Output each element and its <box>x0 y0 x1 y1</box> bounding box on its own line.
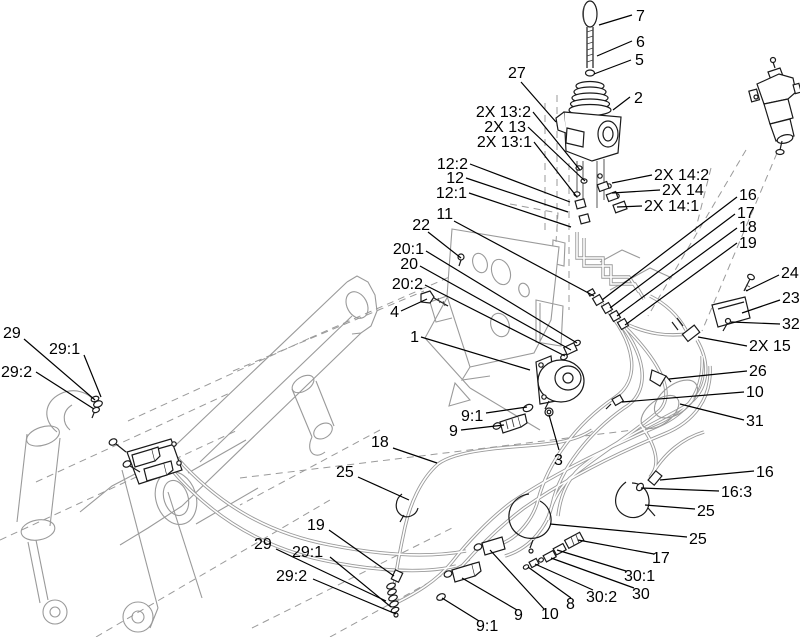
leader-line <box>442 598 479 621</box>
callout-label: 3 <box>554 452 563 469</box>
leader-line <box>731 322 780 324</box>
leader-line <box>557 550 626 571</box>
callout-label: 29:2 <box>276 568 307 585</box>
leader-line <box>462 578 517 610</box>
leader-line <box>612 175 652 183</box>
leader-line <box>469 193 571 227</box>
hose-path <box>178 459 466 555</box>
threaded-shaft <box>587 30 593 62</box>
leader-line <box>551 558 634 588</box>
leader-line <box>594 60 631 74</box>
callout-label: 7 <box>636 8 645 25</box>
callout-label: 16 <box>739 187 757 204</box>
callout-label: 26 <box>749 363 767 380</box>
callout-label: 2 <box>634 90 643 107</box>
leader-line <box>645 505 695 509</box>
clamp-25-right <box>616 482 655 518</box>
leader-line <box>36 372 94 409</box>
coupler-9 <box>492 414 527 433</box>
leader-line <box>358 477 409 500</box>
callout-label: 2X 14 <box>662 182 704 199</box>
leader-line <box>597 41 632 56</box>
mounting-plate <box>430 229 563 380</box>
leader-line <box>535 564 593 590</box>
solenoid-valve <box>749 58 800 155</box>
fitting-29-left <box>90 395 103 418</box>
callout-label: 10 <box>746 384 764 401</box>
callout-label: 4 <box>390 304 399 321</box>
hose-inner <box>178 459 466 555</box>
callout-label: 30:2 <box>586 589 617 606</box>
callout-label: 31 <box>746 413 764 430</box>
callout-label: 19 <box>307 517 325 534</box>
callout-label: 17 <box>652 550 670 567</box>
joystick-bellows <box>569 82 611 116</box>
valve-block <box>492 356 584 433</box>
callout-label: 29:2 <box>1 364 32 381</box>
leader-line <box>393 448 437 463</box>
callout-label: 30 <box>632 586 650 603</box>
leader-line <box>622 392 744 402</box>
callout-label: 1 <box>410 329 419 346</box>
bolt-4 <box>421 291 448 306</box>
hoses <box>170 232 710 602</box>
callout-label: 29 <box>254 536 272 553</box>
leader-line <box>599 15 632 25</box>
callout-label: 29:1 <box>292 544 323 561</box>
hose-path <box>650 296 686 330</box>
hose-end-29 <box>386 570 403 617</box>
hose-inner <box>650 432 704 478</box>
leader-line <box>612 190 660 193</box>
callout-label: 11 <box>436 206 453 223</box>
callout-label: 9 <box>449 423 458 440</box>
callout-label: 29:1 <box>49 341 80 358</box>
leader-line <box>641 488 719 491</box>
callout-label: 22 <box>412 217 430 234</box>
joystick-assembly <box>556 1 627 224</box>
callout-label: 32 <box>782 316 800 333</box>
callout-label: 18 <box>371 434 389 451</box>
callout-label: 24 <box>781 265 799 282</box>
hose-path <box>650 432 704 478</box>
parts-diagram-page: 7652272X 13:22X 132X 13:112:21212:111222… <box>0 0 800 637</box>
callout-label: 23 <box>782 290 800 307</box>
leader-line <box>578 540 654 554</box>
callout-label: 25 <box>336 464 354 481</box>
callout-label: 8 <box>566 596 575 613</box>
callout-label: 18 <box>739 219 757 236</box>
callout-label: 5 <box>635 52 644 69</box>
jam-nut <box>586 70 595 76</box>
leader-line <box>610 214 735 308</box>
callout-label: 2X 13:1 <box>477 134 532 151</box>
callout-label: 16 <box>756 464 774 481</box>
fittings-13-group <box>574 166 590 224</box>
leader-line <box>486 407 527 413</box>
leader-line <box>669 371 747 379</box>
callout-label: 12:1 <box>436 185 467 202</box>
leader-line <box>613 97 630 110</box>
leader-line <box>528 567 571 598</box>
leader-line <box>660 471 754 480</box>
leader-line <box>698 337 747 346</box>
joystick-knob <box>583 1 597 27</box>
callout-label: 20 <box>400 256 418 273</box>
callout-label: 2X 15 <box>749 338 791 355</box>
callout-label: 2X 14:1 <box>644 198 699 215</box>
leader-line <box>550 524 687 537</box>
callout-label: 9 <box>514 607 523 624</box>
callout-label: 27 <box>508 65 526 82</box>
callout-label: 9:1 <box>476 618 498 635</box>
callout-label: 10 <box>541 606 559 623</box>
callout-label: 19 <box>739 235 757 252</box>
leader-line <box>313 579 396 614</box>
hydraulic-parts-diagram: 7652272X 13:22X 132X 13:112:21212:111222… <box>0 0 800 637</box>
callout-label: 6 <box>636 34 645 51</box>
coupler-bracket <box>108 438 182 484</box>
callout-label: 30:1 <box>624 568 655 585</box>
callout-label: 9:1 <box>461 408 483 425</box>
bolt-32 <box>726 319 731 324</box>
callout-label: 20:2 <box>392 276 423 293</box>
leader-line <box>84 355 101 397</box>
callout-label: 29 <box>3 325 21 342</box>
callout-label: 25 <box>689 531 707 548</box>
hose-inner <box>650 296 686 330</box>
callout-label: 25 <box>697 503 715 520</box>
callout-label: 16:3 <box>721 484 752 501</box>
leader-line <box>401 299 427 311</box>
